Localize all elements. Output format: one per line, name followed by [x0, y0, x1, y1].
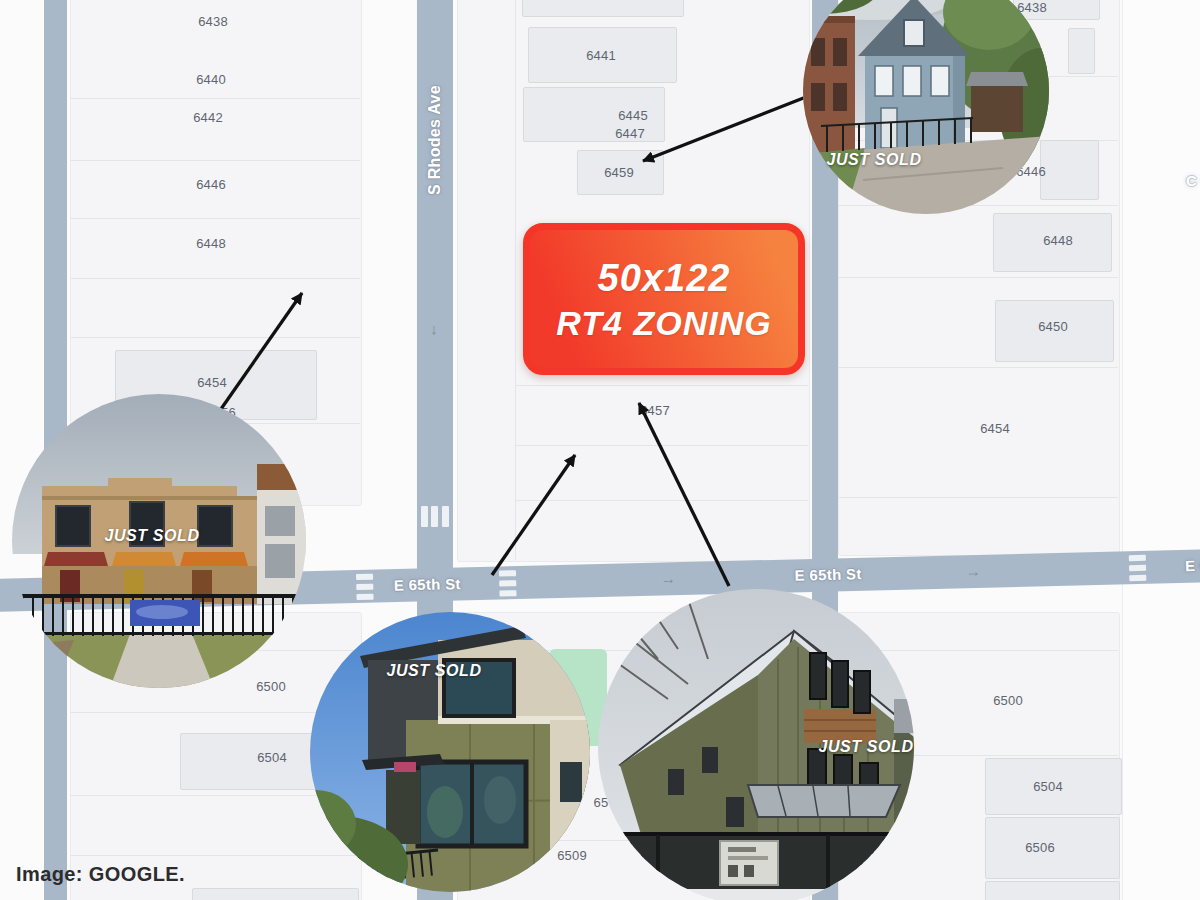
- building-footprint: [522, 0, 684, 17]
- traffic-direction-right-icon: →: [660, 570, 675, 587]
- parcel-number: 6454: [980, 421, 1010, 436]
- crosswalk-bar: [356, 584, 373, 590]
- street-label-e65th-east: E 65th St: [1185, 556, 1200, 575]
- parcel-number: 6459: [604, 165, 634, 180]
- parcel-number: 6454: [197, 375, 227, 390]
- photo-illustration: [310, 612, 590, 892]
- parcel-number: 6450: [1038, 319, 1068, 334]
- parcel-line: [70, 855, 360, 856]
- parcel-number: 6438: [1017, 0, 1047, 15]
- crosswalk-bar: [442, 506, 449, 527]
- parcel-number: 6504: [257, 750, 287, 765]
- parcel-number: 6438: [198, 14, 228, 29]
- parcel-number: 6500: [256, 679, 286, 694]
- parcel-number: 6441: [586, 48, 616, 63]
- parcel-number: 6447: [615, 126, 645, 141]
- zoning-text: RT4 ZONING: [556, 306, 771, 340]
- parcel-line: [70, 98, 360, 99]
- parcel-line: [70, 218, 360, 219]
- just-sold-label-top-right: JUST SOLD: [826, 151, 921, 169]
- building-footprint: [1040, 140, 1099, 200]
- parcel-number: 6504: [1033, 779, 1063, 794]
- building-footprint: [985, 881, 1120, 900]
- parcel-number: 6446: [196, 177, 226, 192]
- parcel-line: [70, 160, 360, 161]
- parcel-line: [515, 0, 516, 560]
- crosswalk-bar: [1129, 575, 1146, 581]
- parcel-number: 6440: [196, 72, 226, 87]
- parcel-number: 6506: [1025, 840, 1055, 855]
- parcel-line: [70, 278, 360, 279]
- parcel-number: 6445: [618, 108, 648, 123]
- building-footprint: [1068, 28, 1095, 74]
- traffic-direction-right-icon: →: [965, 562, 980, 579]
- building-footprint: [192, 888, 359, 900]
- parcel-number: 6457: [640, 403, 670, 418]
- cross-street-label-fragment: C: [1186, 172, 1197, 189]
- crosswalk-bar: [499, 590, 516, 596]
- crosswalk-bar: [356, 594, 373, 600]
- parcel-number: 6509: [557, 848, 587, 863]
- parcel-line: [838, 367, 1118, 368]
- parcel-line: [838, 277, 1118, 278]
- parcel-number: 6500: [993, 693, 1023, 708]
- parcel-line: [515, 445, 808, 446]
- street-label-e65th-west: E 65th St: [394, 575, 461, 594]
- street-label-e65th-mid: E 65th St: [794, 565, 861, 584]
- just-sold-label-bottom-right: JUST SOLD: [818, 738, 913, 756]
- crosswalk-bar: [1129, 555, 1146, 561]
- crosswalk-bar: [499, 570, 516, 576]
- parcel-number: 6442: [193, 110, 223, 125]
- listing-map-graphic: E 65th St E 65th St E 65th St → → S Rhod…: [0, 0, 1200, 900]
- traffic-direction-down-icon: ↓: [430, 320, 438, 337]
- zoning-badge: 50x122 RT4 ZONING: [523, 223, 805, 375]
- parcel-number: 6448: [1043, 233, 1073, 248]
- crosswalk-bar: [421, 506, 428, 527]
- lot-size-text: 50x122: [598, 259, 731, 297]
- parcel-line: [515, 500, 808, 501]
- parcel-line: [515, 385, 808, 386]
- parcel-number: 6448: [196, 236, 226, 251]
- photo-bottom-mid-modern-home: [310, 612, 590, 892]
- parcel-line: [70, 337, 360, 338]
- just-sold-label-bottom-left: JUST SOLD: [104, 527, 199, 545]
- just-sold-label-bottom-mid: JUST SOLD: [386, 662, 481, 680]
- side-road-east: [1122, 0, 1200, 900]
- parcel-line: [838, 497, 1118, 498]
- image-attribution: Image: GOOGLE.: [16, 863, 185, 886]
- crosswalk-bar: [431, 506, 438, 527]
- crosswalk-bar: [499, 580, 516, 586]
- crosswalk-bar: [1129, 565, 1146, 571]
- street-label-s-rhodes: S Rhodes Ave: [426, 85, 444, 195]
- crosswalk-bar: [356, 574, 373, 580]
